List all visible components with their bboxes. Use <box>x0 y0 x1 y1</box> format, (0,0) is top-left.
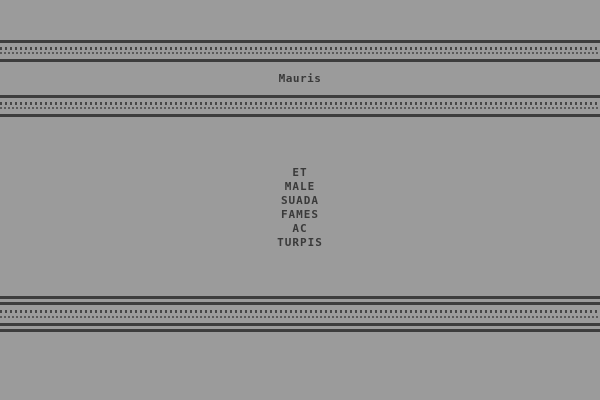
dotted-rule-fine <box>0 107 600 109</box>
dotted-rule-coarse <box>0 102 600 105</box>
dotted-rule-coarse <box>0 310 600 313</box>
document-page: Mauris ET MALE SUADA FAMES AC TURPIS <box>0 0 600 400</box>
horizontal-rule <box>0 329 600 332</box>
divider-bottom <box>0 296 600 332</box>
body-word: SUADA <box>0 194 600 208</box>
body-word: TURPIS <box>0 236 600 250</box>
horizontal-rule <box>0 302 600 305</box>
body-word: AC <box>0 222 600 236</box>
body-text-block: ET MALE SUADA FAMES AC TURPIS <box>0 166 600 250</box>
dotted-rule-fine <box>0 316 600 318</box>
horizontal-rule <box>0 296 600 299</box>
horizontal-rule <box>0 114 600 117</box>
body-word: ET <box>0 166 600 180</box>
body-word: MALE <box>0 180 600 194</box>
body-word: FAMES <box>0 208 600 222</box>
dotted-rule-fine <box>0 52 600 54</box>
page-title: Mauris <box>279 72 322 85</box>
divider-under-title <box>0 95 600 117</box>
horizontal-rule <box>0 95 600 98</box>
horizontal-rule <box>0 40 600 43</box>
horizontal-rule <box>0 323 600 326</box>
title-strip: Mauris <box>0 62 600 95</box>
divider-top <box>0 40 600 62</box>
dotted-rule-coarse <box>0 47 600 50</box>
